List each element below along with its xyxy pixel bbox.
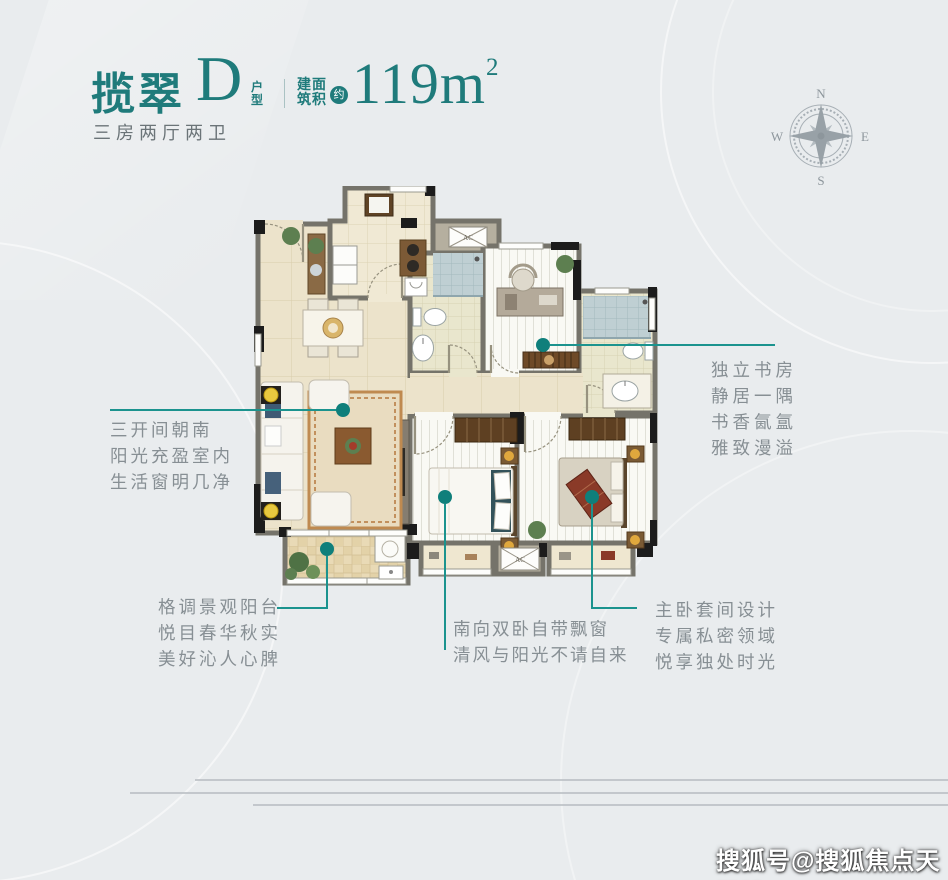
shower-head: [643, 300, 648, 305]
callout-line-study: [550, 344, 775, 346]
callout-line-balcony-h: [277, 607, 328, 609]
note-balcony: 格调景观阳台 悦目春华秋实 美好沁人心脾: [158, 594, 281, 672]
plant: [282, 227, 300, 245]
hallway: [410, 373, 583, 416]
armchair: [311, 492, 351, 526]
watermark: 搜狐号@搜狐焦点天门站: [716, 841, 948, 880]
callout-dot-study: [536, 338, 550, 352]
plant: [556, 255, 574, 273]
washer: [375, 536, 405, 562]
compass-rose: N S W E: [762, 84, 880, 190]
balcony-slider: [287, 530, 407, 536]
header-divider: [284, 79, 285, 108]
ac-unit-label: AC: [515, 556, 525, 564]
compass-north-label: N: [816, 86, 826, 101]
dining-chair: [338, 346, 358, 357]
master-bath-window-top: [595, 288, 629, 294]
callout-line-living: [110, 409, 343, 411]
dining-chair: [338, 299, 358, 310]
note-living: 三开间朝南 阳光充盈室内 生活窗明几净: [110, 417, 233, 495]
approx-badge: 约: [330, 86, 348, 104]
area-value: 119m2: [352, 50, 498, 117]
callout-dot-master: [585, 490, 599, 504]
table-lamp: [504, 451, 514, 461]
dining-chair: [308, 299, 328, 310]
toilet-tank: [413, 308, 421, 326]
bay-decor: [465, 554, 477, 560]
background-line: [195, 779, 948, 781]
project-name: 揽翠: [91, 58, 185, 122]
master-bath-window-right: [649, 298, 655, 330]
table-lamp: [630, 449, 640, 459]
table-lamp: [630, 535, 640, 545]
living-window-left: [255, 334, 261, 366]
pillow: [494, 472, 511, 499]
unit-subtitle: 三房两厅两卫: [93, 119, 231, 145]
note-master-suite: 主卧套间设计 专属私密领域 悦享独处时光: [655, 597, 778, 675]
area-exponent: 2: [486, 54, 499, 81]
note-study: 独立书房 静居一隅 书香氤氲 雅致漫溢: [711, 357, 797, 461]
callout-line-master-v: [591, 504, 593, 609]
area-label: 建面 筑积: [297, 78, 327, 108]
callout-dot-balcony: [320, 542, 334, 556]
plant: [285, 568, 297, 580]
pillow: [265, 426, 281, 446]
bay-decor: [601, 551, 615, 560]
dining-chair: [308, 346, 328, 357]
background-arc: [0, 240, 284, 880]
plant: [528, 521, 546, 539]
pillow: [611, 494, 623, 522]
shower-head: [475, 257, 480, 262]
shower-master: [583, 296, 651, 338]
toilet-bowl: [424, 309, 446, 326]
background-line: [130, 792, 948, 794]
study-window: [499, 243, 543, 249]
compass-south-label: S: [817, 173, 824, 188]
compass-east-label: E: [861, 129, 869, 144]
pillow: [611, 462, 623, 490]
pillow: [494, 503, 511, 530]
wardrobe: [455, 418, 517, 442]
desk-chair: [512, 269, 534, 291]
callout-line-south-bedroom: [444, 504, 446, 650]
mop-sink: [405, 278, 427, 296]
callout-dot-living: [336, 403, 350, 417]
callout-dot-south-bedroom: [438, 490, 452, 504]
note-south-bedrooms: 南向双卧自带飘窗 清风与阳光不请自来: [453, 616, 629, 668]
callout-line-master-h: [591, 607, 637, 609]
pillow: [265, 472, 281, 494]
plant: [308, 238, 324, 254]
bay-decor: [429, 552, 439, 559]
plant: [306, 565, 320, 579]
callout-line-balcony-v: [326, 556, 328, 609]
floorplan: AC AC: [253, 186, 683, 590]
background-line: [253, 804, 948, 806]
unit-letter: D: [196, 42, 242, 116]
unit-type-label: 户 型: [251, 81, 263, 107]
kitchen-window: [390, 186, 426, 192]
page: 揽翠 D 户 型 建面 筑积 约 119m2 三房两厅两卫: [0, 0, 948, 880]
south-bay-glass: [423, 569, 491, 575]
bay-decor: [559, 552, 571, 560]
compass-west-label: W: [771, 129, 784, 144]
ac-unit-label: AC: [463, 234, 473, 242]
